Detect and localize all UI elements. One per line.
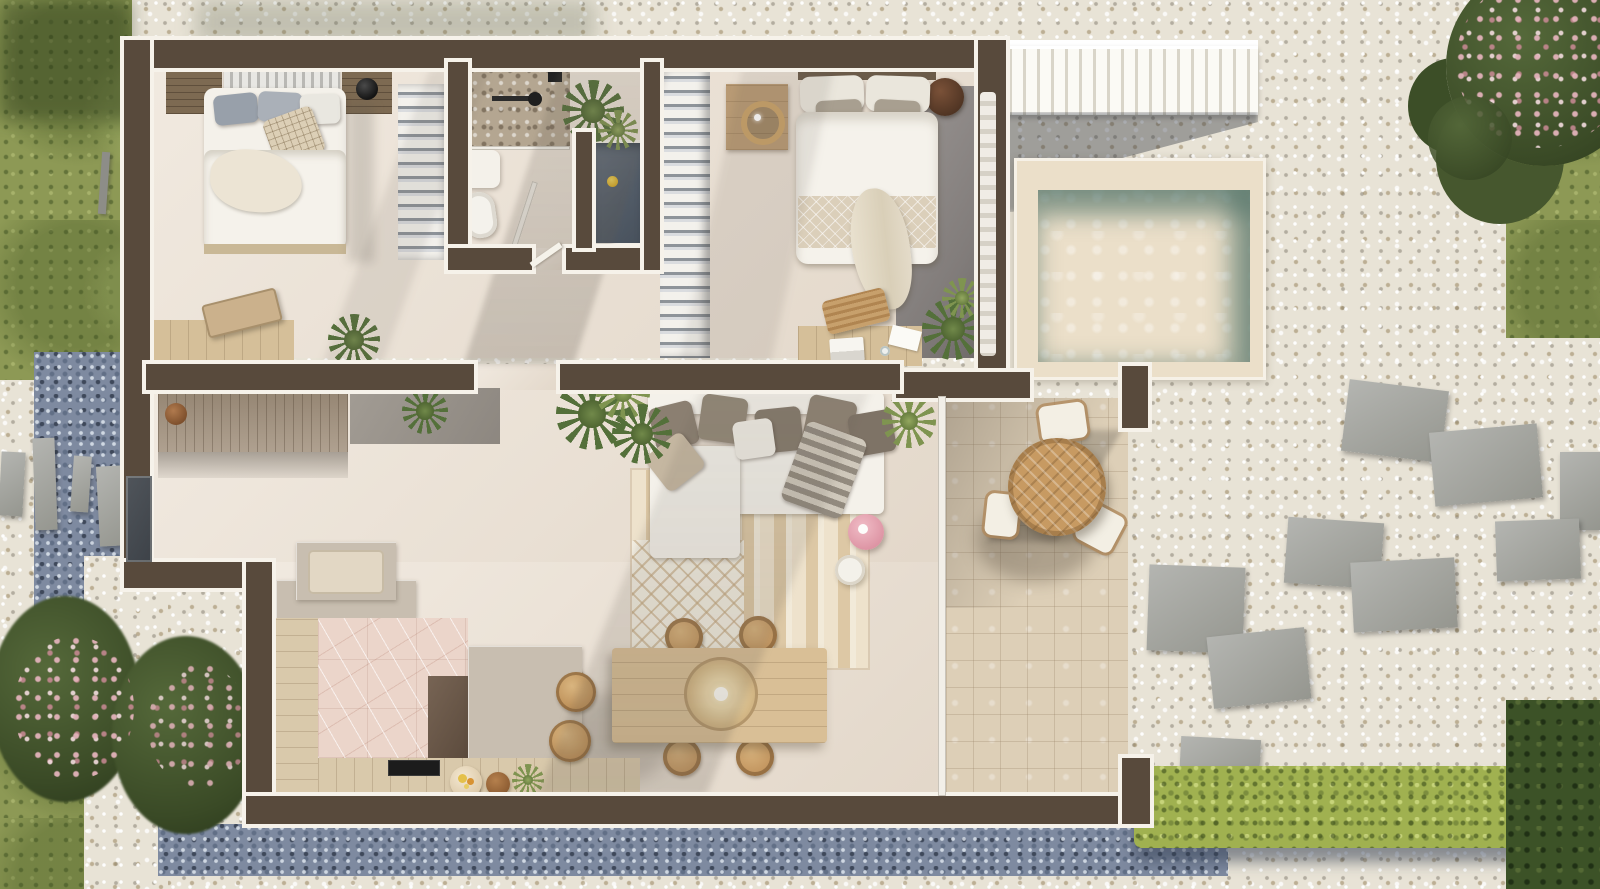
wall-bottom (246, 796, 1150, 824)
white-flower-bed (148, 664, 250, 788)
tree-shadow-top-strip (196, 0, 596, 44)
partition-tub-left (576, 132, 592, 248)
vase (165, 403, 187, 425)
round-side-table-b2 (926, 78, 964, 116)
pink-flower-bed (14, 636, 134, 780)
concrete-paver (1429, 423, 1543, 506)
concrete-paver (1350, 557, 1458, 632)
round-patio-table (1008, 438, 1106, 536)
console-sideboard (158, 390, 348, 452)
entry-door (126, 476, 152, 562)
palm-right-of-sofa (882, 394, 936, 448)
partition-tub-right (644, 62, 660, 270)
shower-head (528, 92, 542, 106)
aloe-plant-hall (402, 388, 448, 434)
patio-chair-top (1038, 401, 1089, 443)
shrub-small (1428, 96, 1512, 180)
pillow-slate-b1 (213, 92, 260, 126)
floor-hall-doorway (474, 364, 560, 390)
partition-bedroom2-bottom (560, 364, 900, 390)
concrete-paver (1207, 627, 1312, 709)
staircase (984, 46, 1258, 115)
laptop-b2 (829, 337, 865, 363)
plunge-pool-water (1038, 190, 1250, 362)
kitchen-wood-floor-left (276, 618, 318, 796)
fruit-lemons (458, 774, 467, 783)
pouf-tray-item (858, 524, 868, 534)
dining-chair (736, 738, 774, 776)
fern-plant-b2-top (942, 278, 982, 318)
monstera-plant-3 (612, 404, 672, 464)
dark-shrub-bottom-right (1506, 700, 1600, 889)
partition-bath-bottom-left (448, 248, 532, 270)
wooden-bowl (486, 772, 510, 796)
tree-shadow-top-left (0, 0, 132, 120)
dark-cabinet (428, 676, 468, 758)
console-shadow (158, 452, 348, 478)
wall-h2-pool-side (896, 372, 1030, 398)
table-lamp-b1 (356, 78, 378, 100)
cup-b2 (880, 346, 890, 356)
partition-bedroom1-bottom (146, 364, 474, 390)
black-cooktop (388, 760, 440, 776)
side-table-white (835, 555, 865, 585)
glass-wall-living-patio (938, 396, 946, 796)
sheer-curtain-b2 (980, 92, 996, 356)
wall-pillar-patio (1122, 366, 1148, 428)
stepping-stone (32, 438, 57, 531)
wall-top (124, 40, 1006, 68)
concrete-paver (1495, 519, 1581, 582)
blue-gravel-bottom-band (158, 824, 1228, 876)
bed-base-b1 (204, 244, 346, 254)
stepping-stone (96, 465, 126, 546)
wall-left-lower (246, 562, 272, 824)
fruit-bowl (450, 766, 482, 798)
bench-seat-cushion (308, 550, 384, 594)
floor-plan-scene (0, 0, 1600, 889)
stepping-stone (0, 451, 26, 516)
partition-bedroom1-bath (448, 62, 468, 270)
wall-corner-bottom-right (1122, 758, 1150, 824)
